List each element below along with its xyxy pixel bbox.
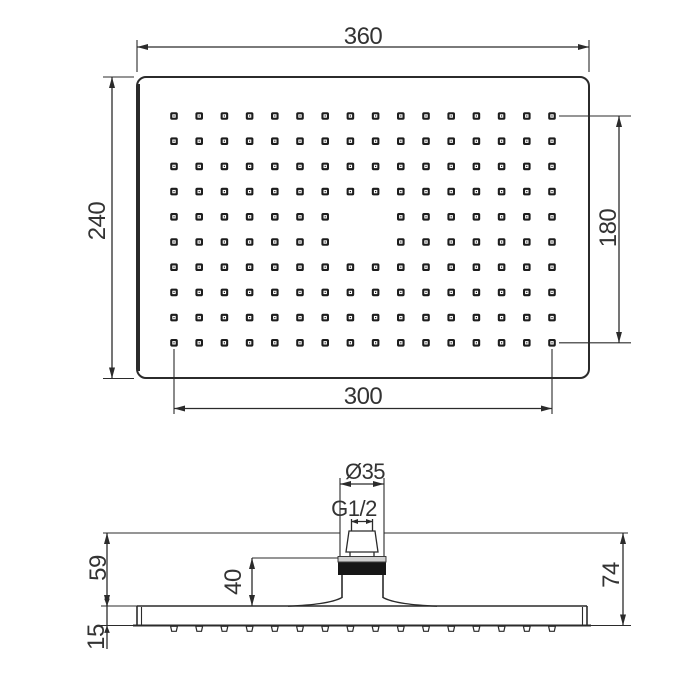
nozzle: [548, 289, 556, 297]
nozzle: [170, 314, 178, 322]
nozzle: [246, 213, 254, 221]
dim-label-plate-thickness: 15: [83, 624, 110, 650]
nozzle: [246, 314, 254, 322]
nozzle: [195, 137, 203, 145]
nozzle: [296, 238, 304, 246]
plate-profile: [101, 606, 591, 631]
nozzle: [523, 163, 531, 171]
side-nozzle: [473, 626, 480, 631]
nozzle: [347, 112, 355, 120]
nozzle: [246, 339, 254, 347]
nozzle: [170, 289, 178, 297]
nozzle: [221, 163, 229, 171]
side-nozzle: [372, 626, 379, 631]
side-nozzle: [271, 626, 278, 631]
dim-label-thread-size: G1/2: [331, 496, 377, 521]
nozzle: [473, 289, 481, 297]
nozzle: [498, 289, 506, 297]
nozzle: [523, 112, 531, 120]
nozzle: [372, 314, 380, 322]
nozzle: [473, 238, 481, 246]
nozzle: [195, 213, 203, 221]
collar-ring: [338, 557, 386, 563]
nozzle: [422, 112, 430, 120]
nozzle: [246, 163, 254, 171]
dim-label-collar-height: 40: [220, 569, 247, 595]
nozzle: [422, 137, 430, 145]
side-nozzle-row: [171, 626, 556, 631]
side-nozzle: [221, 626, 228, 631]
nozzle: [523, 213, 531, 221]
nozzle: [347, 339, 355, 347]
nozzle: [271, 314, 279, 322]
dim-label-total-height: 74: [598, 562, 625, 588]
nozzle: [347, 263, 355, 271]
dim-label-height: 240: [84, 202, 111, 241]
nozzle: [422, 238, 430, 246]
nozzle: [296, 263, 304, 271]
nozzle: [271, 163, 279, 171]
dim-59: 59: [85, 533, 112, 606]
nozzle: [548, 314, 556, 322]
nozzle: [447, 238, 455, 246]
nozzle: [195, 163, 203, 171]
nozzle: [246, 263, 254, 271]
dim-thread-g12: G1/2: [331, 496, 377, 522]
nozzle: [498, 213, 506, 221]
nozzle: [397, 314, 405, 322]
nozzle: [271, 339, 279, 347]
nozzle: [447, 188, 455, 196]
nozzle: [347, 314, 355, 322]
nozzle: [397, 163, 405, 171]
nozzle: [170, 163, 178, 171]
dim-label-arm-height: 59: [85, 555, 112, 581]
nozzle: [397, 188, 405, 196]
side-nozzle: [171, 626, 178, 631]
nozzle: [447, 213, 455, 221]
nozzle: [523, 314, 531, 322]
nozzle: [447, 137, 455, 145]
nozzle: [523, 137, 531, 145]
nozzle: [422, 213, 430, 221]
nozzle: [195, 289, 203, 297]
nozzle: [447, 339, 455, 347]
nozzle: [195, 263, 203, 271]
nozzle: [498, 263, 506, 271]
nozzle: [321, 339, 329, 347]
side-nozzle: [347, 626, 354, 631]
nozzle: [372, 263, 380, 271]
nozzle: [548, 137, 556, 145]
nozzle: [271, 188, 279, 196]
nozzle: [271, 263, 279, 271]
side-nozzle: [498, 626, 505, 631]
nozzle: [271, 289, 279, 297]
nozzle: [321, 163, 329, 171]
nozzle: [321, 238, 329, 246]
nozzle: [422, 163, 430, 171]
shower-head-technical-drawing: 360 240 180 300: [0, 0, 700, 700]
nozzle: [397, 263, 405, 271]
nozzle: [271, 238, 279, 246]
cone-flare-left: [288, 598, 342, 607]
nozzle: [473, 339, 481, 347]
nozzle: [498, 238, 506, 246]
nozzle: [473, 112, 481, 120]
nozzle: [498, 339, 506, 347]
nozzle: [422, 188, 430, 196]
nozzle: [372, 188, 380, 196]
nozzle: [422, 263, 430, 271]
nozzle: [372, 339, 380, 347]
nozzle: [397, 112, 405, 120]
nozzle: [473, 163, 481, 171]
top-view: 360 240 180 300: [84, 23, 631, 414]
side-nozzle: [246, 626, 253, 631]
side-nozzle: [397, 626, 404, 631]
side-nozzle: [196, 626, 203, 631]
nozzle: [347, 188, 355, 196]
side-nozzle: [322, 626, 329, 631]
nozzle: [397, 213, 405, 221]
connector: [288, 519, 437, 606]
cone-flare-right: [383, 598, 437, 607]
nozzle: [498, 112, 506, 120]
nozzle: [422, 314, 430, 322]
nozzle: [246, 137, 254, 145]
nozzle: [296, 213, 304, 221]
head-plate-outline: [137, 77, 589, 378]
nozzle: [372, 289, 380, 297]
dim-label-width: 360: [344, 23, 383, 50]
nozzle: [372, 163, 380, 171]
nozzle: [195, 188, 203, 196]
dim-15: 15: [83, 597, 110, 650]
nozzle: [296, 339, 304, 347]
dim-width-360: 360: [137, 23, 589, 72]
nozzle: [397, 339, 405, 347]
nozzle-grid: [170, 112, 556, 346]
nozzle: [221, 263, 229, 271]
nozzle: [548, 112, 556, 120]
side-nozzle: [549, 626, 556, 631]
nozzle: [221, 112, 229, 120]
nozzle: [195, 314, 203, 322]
nozzle: [271, 137, 279, 145]
nozzle: [473, 314, 481, 322]
nozzle: [321, 137, 329, 145]
arrow-down-icon: [104, 599, 110, 606]
nozzle: [321, 188, 329, 196]
nozzle: [321, 289, 329, 297]
nozzle: [397, 289, 405, 297]
side-nozzle: [423, 626, 430, 631]
nozzle: [195, 238, 203, 246]
nozzle: [221, 314, 229, 322]
nozzle: [221, 188, 229, 196]
nozzle: [397, 238, 405, 246]
nozzle: [321, 213, 329, 221]
side-nozzle: [448, 626, 455, 631]
nozzle: [170, 137, 178, 145]
nozzle: [447, 163, 455, 171]
nozzle: [246, 238, 254, 246]
side-nozzle: [523, 626, 530, 631]
nozzle: [271, 213, 279, 221]
nozzle: [473, 137, 481, 145]
nozzle: [296, 188, 304, 196]
nozzle: [548, 188, 556, 196]
nozzle: [321, 263, 329, 271]
nozzle: [170, 213, 178, 221]
nozzle: [246, 188, 254, 196]
dim-field-width-300: 300: [174, 349, 552, 414]
nozzle: [221, 339, 229, 347]
nozzle: [221, 289, 229, 297]
nozzle: [296, 112, 304, 120]
nozzle: [523, 339, 531, 347]
dim-label-connector-diameter: Ø35: [345, 459, 385, 484]
nozzle: [548, 339, 556, 347]
nozzle: [195, 339, 203, 347]
nozzle: [523, 289, 531, 297]
connector-nut: [346, 531, 378, 552]
nozzle: [498, 188, 506, 196]
nozzle: [271, 112, 279, 120]
nozzle: [422, 289, 430, 297]
nozzle: [170, 263, 178, 271]
nozzle: [548, 213, 556, 221]
nozzle: [221, 238, 229, 246]
dim-height-240: 240: [84, 77, 134, 379]
nozzle: [246, 289, 254, 297]
nozzle: [170, 238, 178, 246]
technical-drawing-page: 360 240 180 300: [0, 0, 700, 700]
dim-field-height-180: 180: [559, 116, 631, 343]
nozzle: [447, 314, 455, 322]
nozzle: [195, 112, 203, 120]
nozzle: [548, 163, 556, 171]
dim-74: 74: [587, 533, 631, 626]
dim-40: 40: [220, 558, 340, 606]
nozzle: [498, 163, 506, 171]
nozzle: [296, 163, 304, 171]
nozzle: [347, 289, 355, 297]
nozzle: [296, 137, 304, 145]
nozzle: [498, 314, 506, 322]
nozzle: [447, 289, 455, 297]
nozzle: [221, 213, 229, 221]
nozzle: [447, 112, 455, 120]
nozzle: [473, 188, 481, 196]
nozzle: [170, 188, 178, 196]
nozzle: [422, 339, 430, 347]
nozzle: [447, 263, 455, 271]
nozzle: [473, 213, 481, 221]
nozzle: [523, 188, 531, 196]
nozzle: [221, 137, 229, 145]
nozzle: [523, 263, 531, 271]
nozzle: [347, 137, 355, 145]
side-view: 59 15 74 40: [83, 459, 631, 650]
nozzle: [473, 263, 481, 271]
nozzle: [321, 112, 329, 120]
nozzle: [548, 238, 556, 246]
nozzle: [523, 238, 531, 246]
nozzle: [170, 339, 178, 347]
nozzle: [170, 112, 178, 120]
nozzle: [321, 314, 329, 322]
nozzle: [246, 112, 254, 120]
dim-label-field-height: 180: [595, 209, 622, 248]
rubber-band-ring: [338, 563, 386, 576]
dim-label-field-width: 300: [344, 383, 383, 410]
side-nozzle: [297, 626, 304, 631]
nozzle: [372, 137, 380, 145]
nozzle: [372, 112, 380, 120]
nozzle: [296, 314, 304, 322]
nozzle: [347, 163, 355, 171]
nozzle: [548, 263, 556, 271]
nozzle: [498, 137, 506, 145]
nozzle: [296, 289, 304, 297]
nozzle: [397, 137, 405, 145]
